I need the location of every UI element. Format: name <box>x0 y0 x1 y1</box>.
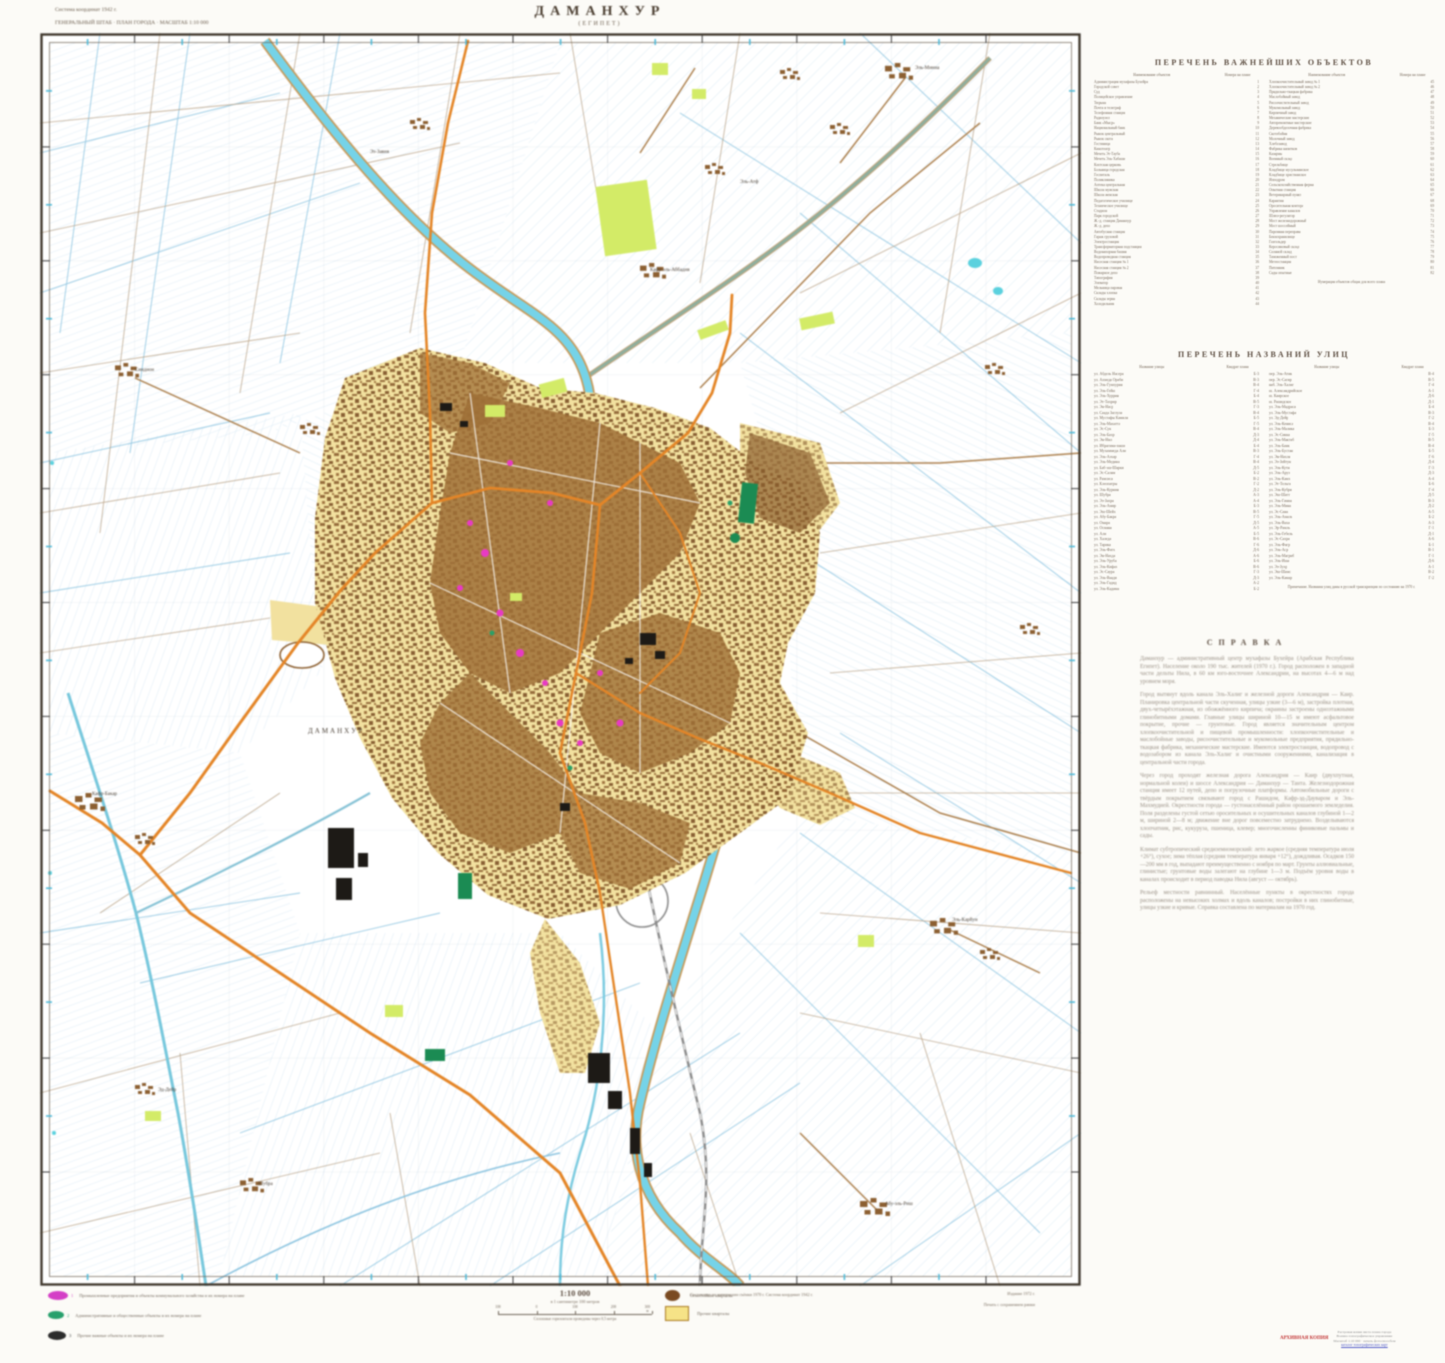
legend-label: Прочие кварталы <box>697 1311 729 1316</box>
legend-label: Прочие важные объекты и их номера на пла… <box>77 1333 164 1338</box>
stamp-red-text: АРХИВНАЯ КОПИЯ <box>1280 1336 1328 1341</box>
scale-note: в 1 сантиметре 100 метров <box>480 1299 670 1304</box>
green-oval-symbol <box>48 1311 64 1319</box>
objects-column-left: Наименование объектов Номера на плане Ад… <box>1094 73 1259 307</box>
legend-item-other: 3 Прочие важные объекты и их номера на п… <box>48 1331 164 1340</box>
reference-paragraph: Город вытянут вдоль канала Эль-Халиг и ж… <box>1140 692 1354 767</box>
objects-num-header: Номера на плане <box>1391 73 1434 77</box>
scale-tick-label: 200 <box>611 1305 616 1309</box>
legend-item-quarters: Прочие кварталы <box>665 1306 729 1321</box>
index-row: ул. Эль-КадимаБ-2 <box>1094 587 1259 593</box>
index-row: Сады опытные82 <box>1269 271 1434 276</box>
reference-paragraph: Через город проходят железная дорога Але… <box>1140 773 1354 841</box>
footer-right-note-2: Печать с сохранением рамки <box>905 1302 1035 1307</box>
streets-index-section: ПЕРЕЧЕНЬ НАЗВАНИЙ УЛИЦ Название улицы Кв… <box>1088 350 1440 592</box>
city-plan-map: Эз-ЗавияКафр-эль-АббадияЭль-МиниаСиндион… <box>40 33 1081 1286</box>
reference-paragraph: Рельеф местности равнинный. Населённые п… <box>1140 890 1354 913</box>
reference-paragraph: Климат субтропический средиземноморский:… <box>1140 847 1354 885</box>
place-label: Эль-Атф <box>740 180 759 185</box>
place-label: Эль-Карйун <box>952 918 978 923</box>
objects-index-footnote: Нумерация объектов общая для всего плана <box>1269 280 1434 284</box>
footer-right-note-1: Издание 1972 г. <box>905 1291 1035 1296</box>
footer-center-note: Составлено по материалам съёмки 1970 г. … <box>690 1292 813 1297</box>
map-canvas: Эз-ЗавияКафр-эль-АббадияЭль-МиниаСиндион… <box>40 33 1081 1286</box>
scale-ratio: 1:10 000 <box>480 1288 670 1298</box>
index-row: Холодильник44 <box>1094 302 1259 307</box>
streets-column-left: Название улицы Квадрат плана ул. Абдель … <box>1094 365 1259 592</box>
map-title: ДАМАНХУР <box>420 4 780 20</box>
index-row: ул. Эль-КамарГ-2 <box>1269 576 1434 582</box>
magenta-oval-symbol <box>48 1291 68 1300</box>
contour-note: Сплошные горизонтали проведены через 0,5… <box>480 1317 670 1321</box>
stamp-line: Военно-топографическое управление <box>1336 1334 1392 1338</box>
place-label: Эз-Завия <box>370 150 390 155</box>
legend-item-public: 2 Административные и общественные объект… <box>48 1311 201 1319</box>
scale-block: 1:10 000 в 1 сантиметре 100 метров 100 0… <box>480 1288 670 1321</box>
scale-bar: 100 0 100 200 300 м <box>498 1306 652 1315</box>
scale-tick-label: 300 м <box>645 1305 650 1313</box>
streets-index-title: ПЕРЕЧЕНЬ НАЗВАНИЙ УЛИЦ <box>1088 350 1440 359</box>
legend-num: 3 <box>69 1333 71 1338</box>
objects-name-header: Наименование объектов <box>1269 73 1385 77</box>
streets-name-header: Название улицы <box>1269 365 1385 369</box>
legend-label: Административные и общественные объекты … <box>75 1313 201 1318</box>
seller-stamp: АРХИВНАЯ КОПИЯ Растровая копия листа пла… <box>1280 1330 1442 1348</box>
reference-paragraph: Даманхур — административный центр мухафа… <box>1140 656 1354 686</box>
legend-label: Промышленные предприятия и объекты комму… <box>79 1293 244 1298</box>
place-label: Кафр-Бакар <box>92 792 118 797</box>
stamp-line: Растровая копия листа плана города <box>1338 1330 1392 1334</box>
place-label: Кафр-эль-Аббадия <box>650 268 690 273</box>
objects-index-section: ПЕРЕЧЕНЬ ВАЖНЕЙШИХ ОБЪЕКТОВ Наименование… <box>1088 58 1440 307</box>
streets-index-footnote: Примечание. Названия улиц даны в русской… <box>1269 585 1434 589</box>
place-label: Эд-Дейр <box>158 1088 177 1093</box>
scale-tick-label: 0 <box>536 1305 538 1309</box>
reference-title: СПРАВКА <box>1140 638 1354 647</box>
objects-column-right: Наименование объектов Номера на плане Хл… <box>1269 73 1434 307</box>
place-label: Синдион <box>135 368 154 373</box>
stamp-link[interactable]: каталог топографических карт <box>1341 1343 1388 1347</box>
stamp-text-block: Растровая копия листа плана города Военн… <box>1333 1330 1395 1348</box>
reference-text: Даманхур — административный центр мухафа… <box>1140 656 1354 913</box>
streets-name-header: Название улицы <box>1094 365 1210 369</box>
legend-num: 1 <box>71 1293 73 1298</box>
legend-num: 2 <box>67 1313 69 1318</box>
scanned-map-sheet: Система координат 1942 г. ГЕНЕРАЛЬНЫЙ ШТ… <box>0 0 1445 1363</box>
streets-num-header: Квадрат плана <box>1391 365 1434 369</box>
scale-tick-label: 100 <box>495 1305 500 1309</box>
scale-tick-label: 100 <box>572 1305 577 1309</box>
place-label: ДАМАНХУР <box>308 727 364 735</box>
legend-item-industrial: 1 Промышленные предприятия и объекты ком… <box>48 1291 244 1300</box>
corner-note-1: Система координат 1942 г. <box>55 7 415 13</box>
reference-section: СПРАВКА Даманхур — административный цент… <box>1140 638 1354 919</box>
stamp-line: Масштаб 1:10 000 · печать фотоспособом <box>1333 1339 1395 1343</box>
objects-index-title: ПЕРЕЧЕНЬ ВАЖНЕЙШИХ ОБЪЕКТОВ <box>1088 58 1440 67</box>
black-oval-symbol <box>48 1331 66 1340</box>
objects-name-header: Наименование объектов <box>1094 73 1210 77</box>
place-label: Эль-Миниа <box>915 66 940 71</box>
place-label: Абу-эль-Риш <box>885 1202 913 1207</box>
corner-note-2: ГЕНЕРАЛЬНЫЙ ШТАБ · ПЛАН ГОРОДА · МАСШТАБ… <box>55 20 415 26</box>
streets-column-right: Название улицы Квадрат плана пер. Эль-Ат… <box>1269 365 1434 592</box>
objects-num-header: Номера на плане <box>1216 73 1259 77</box>
map-subtitle: (ЕГИПЕТ) <box>420 21 780 27</box>
streets-num-header: Квадрат плана <box>1216 365 1259 369</box>
place-label: Шубра <box>258 1182 274 1187</box>
